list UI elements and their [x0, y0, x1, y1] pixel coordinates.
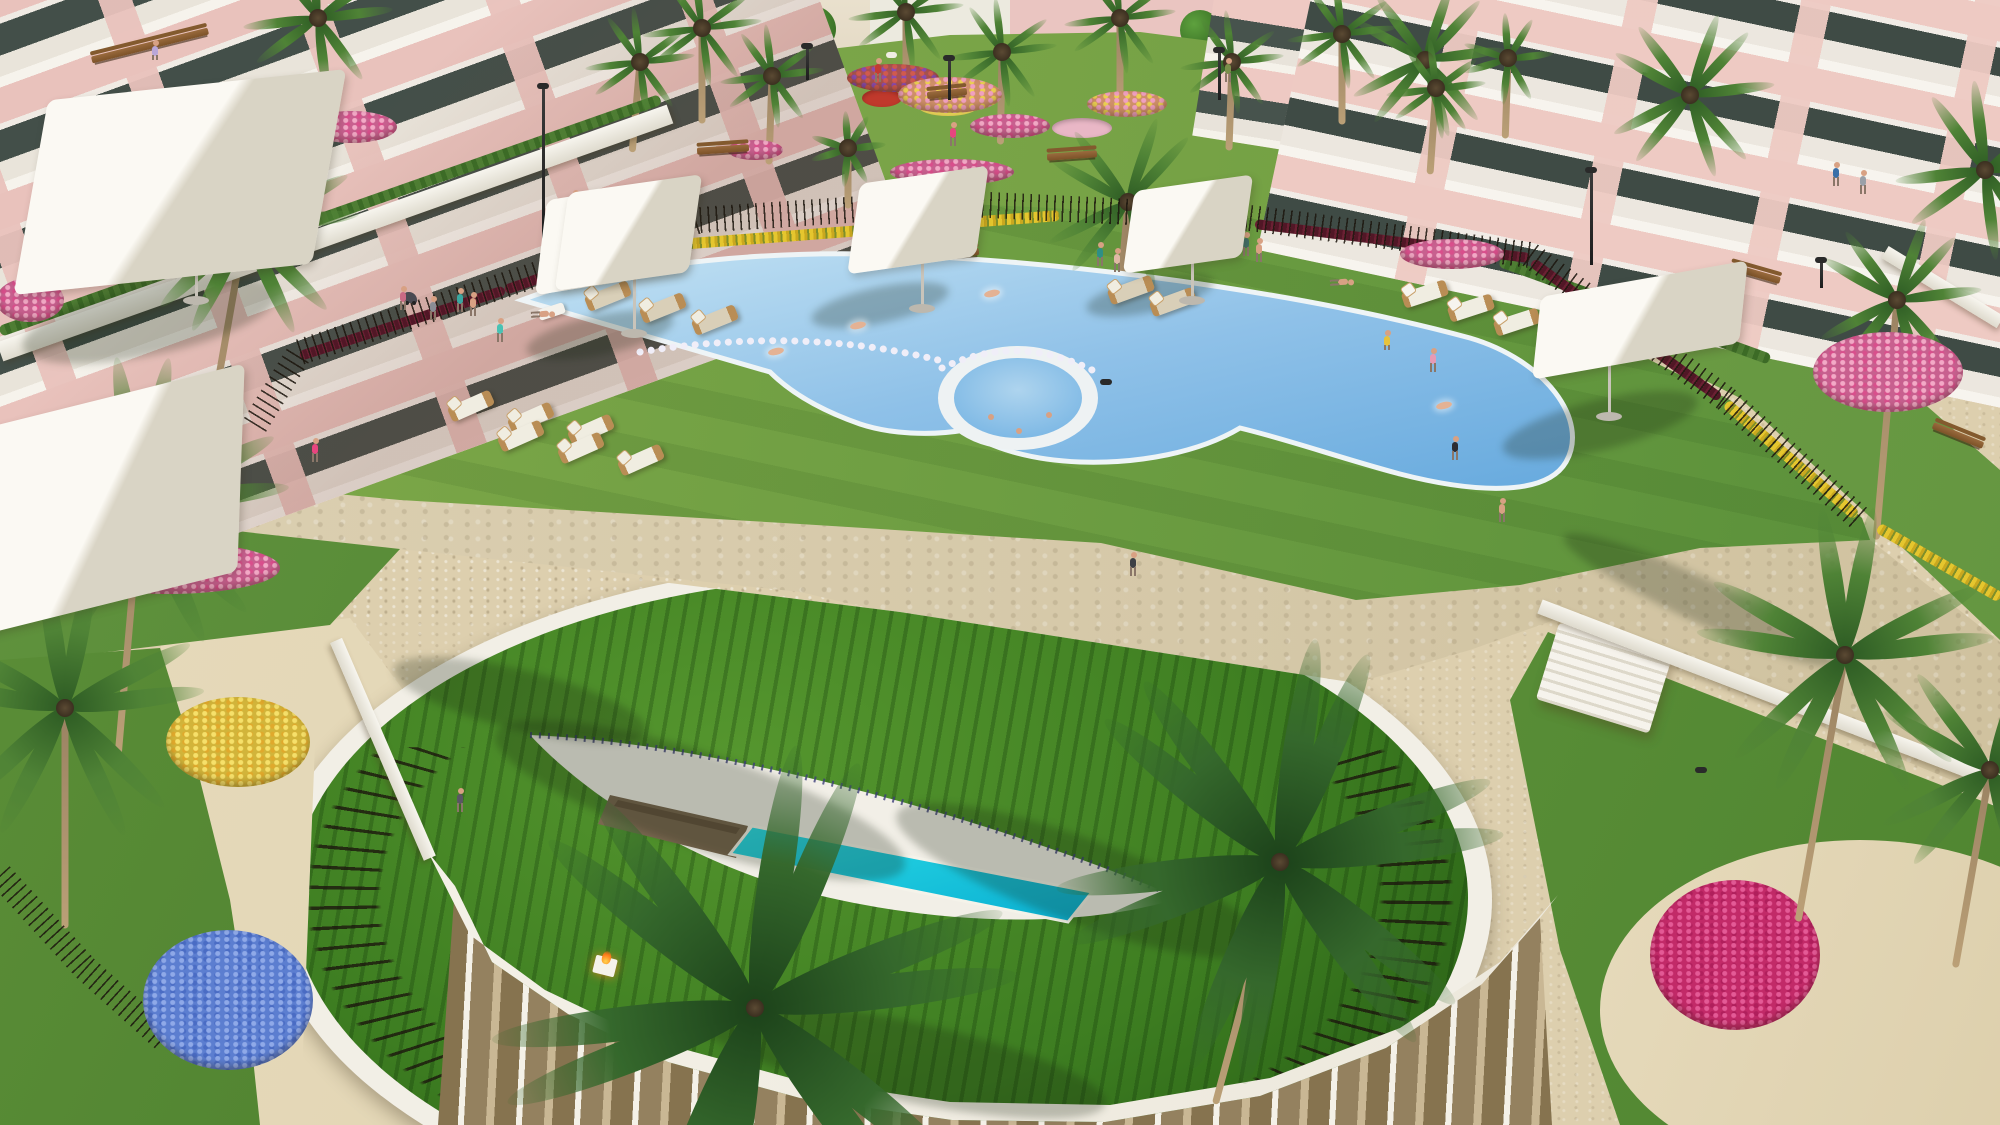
person-legs	[1097, 257, 1103, 266]
flowerbed-pink	[1813, 332, 1963, 412]
white-parasol	[14, 69, 347, 295]
person-walk	[310, 438, 320, 462]
street-lamp-head	[1695, 767, 1707, 773]
person-legs	[1330, 279, 1339, 286]
umbrella-base	[621, 329, 647, 338]
flowerbed-pink	[1400, 239, 1504, 269]
umbrella-pole	[1191, 258, 1194, 300]
person-sit	[1382, 330, 1392, 354]
person-stand	[1112, 248, 1122, 272]
person-lie	[531, 308, 556, 320]
flowerbed-pinkyellow	[1087, 91, 1167, 117]
palm-crown-core	[1271, 853, 1289, 871]
umbrella-pole	[921, 258, 924, 308]
palm-crown-core	[1981, 761, 1999, 779]
person-stand	[1450, 436, 1460, 460]
person-stand	[1428, 348, 1438, 372]
umbrella-base	[909, 304, 935, 313]
umbrella-base	[1596, 412, 1622, 421]
person-stand	[1254, 238, 1264, 262]
person-stand	[1858, 170, 1868, 194]
flowerbed-blue	[143, 930, 313, 1070]
street-lamp-head	[1100, 379, 1112, 385]
street-lamp-head	[943, 55, 955, 61]
palm-crown-core	[1888, 291, 1906, 309]
person-legs	[950, 137, 956, 146]
person-legs	[1452, 451, 1458, 460]
person-legs	[457, 303, 463, 312]
street-lamp-pole	[1218, 52, 1221, 100]
person-legs	[1225, 73, 1231, 82]
person-torso	[1338, 279, 1348, 286]
person-stand	[873, 58, 883, 82]
person-legs	[1384, 345, 1390, 350]
bather-head	[988, 414, 994, 420]
person-stand	[398, 286, 408, 310]
person-stand	[455, 788, 465, 812]
person-legs	[400, 301, 406, 310]
person-stand	[428, 296, 438, 320]
white-parasol	[554, 174, 701, 291]
person-stand	[1831, 162, 1841, 186]
person-legs	[457, 803, 463, 812]
street-lamp-head	[1585, 167, 1597, 173]
street-lamp-head	[1213, 47, 1225, 53]
person-head	[549, 311, 555, 317]
person-legs	[470, 307, 476, 316]
person-legs	[1833, 177, 1839, 186]
person-lie	[1330, 276, 1355, 288]
dog	[886, 52, 897, 58]
person-torso	[539, 311, 549, 318]
person-legs	[1243, 247, 1249, 256]
person-stand	[1095, 242, 1105, 266]
street-lamp-head	[537, 83, 549, 89]
person-head	[1348, 279, 1354, 285]
street-lamp-head	[1815, 257, 1827, 263]
street-lamp-pole	[1590, 172, 1593, 265]
person-walk	[1497, 498, 1507, 522]
person-sit	[150, 40, 160, 64]
person-legs	[875, 73, 881, 82]
person-legs	[152, 55, 158, 60]
person-walk	[495, 318, 505, 342]
person-stand	[455, 288, 465, 312]
umbrella-base	[183, 296, 209, 305]
street-lamp-pole	[806, 48, 809, 80]
resort-aerial-render: // generic text binder (no visible text …	[0, 0, 2000, 1125]
street-lamp-pole	[1820, 262, 1823, 288]
palm-crown-core	[1836, 646, 1854, 664]
person-legs	[1430, 363, 1436, 372]
street-lamp-head	[801, 43, 813, 49]
palm-crown-core	[56, 699, 74, 717]
person-legs	[1256, 253, 1262, 262]
person-legs	[1130, 567, 1136, 576]
person-walk	[1128, 552, 1138, 576]
umbrella-base	[1179, 296, 1205, 305]
palm-crown-core	[746, 999, 764, 1017]
person-stand	[1223, 58, 1233, 82]
flowerbed-yellow	[166, 697, 310, 787]
person-legs	[531, 311, 540, 318]
person-legs	[1499, 513, 1505, 522]
person-walk	[948, 122, 958, 146]
person-legs	[430, 311, 436, 320]
person-legs	[312, 453, 318, 462]
bather-head	[1046, 412, 1052, 418]
person-legs	[1114, 263, 1120, 272]
flowerbed-magenta	[1650, 880, 1820, 1030]
bather-head	[1016, 428, 1022, 434]
street-lamp-pole	[948, 60, 951, 100]
person-legs	[1860, 185, 1866, 194]
jacuzzi-water	[954, 358, 1082, 438]
umbrella-pole	[633, 274, 636, 334]
flowerbed-pink	[970, 114, 1050, 138]
person-stand	[468, 292, 478, 316]
person-legs	[497, 333, 503, 342]
